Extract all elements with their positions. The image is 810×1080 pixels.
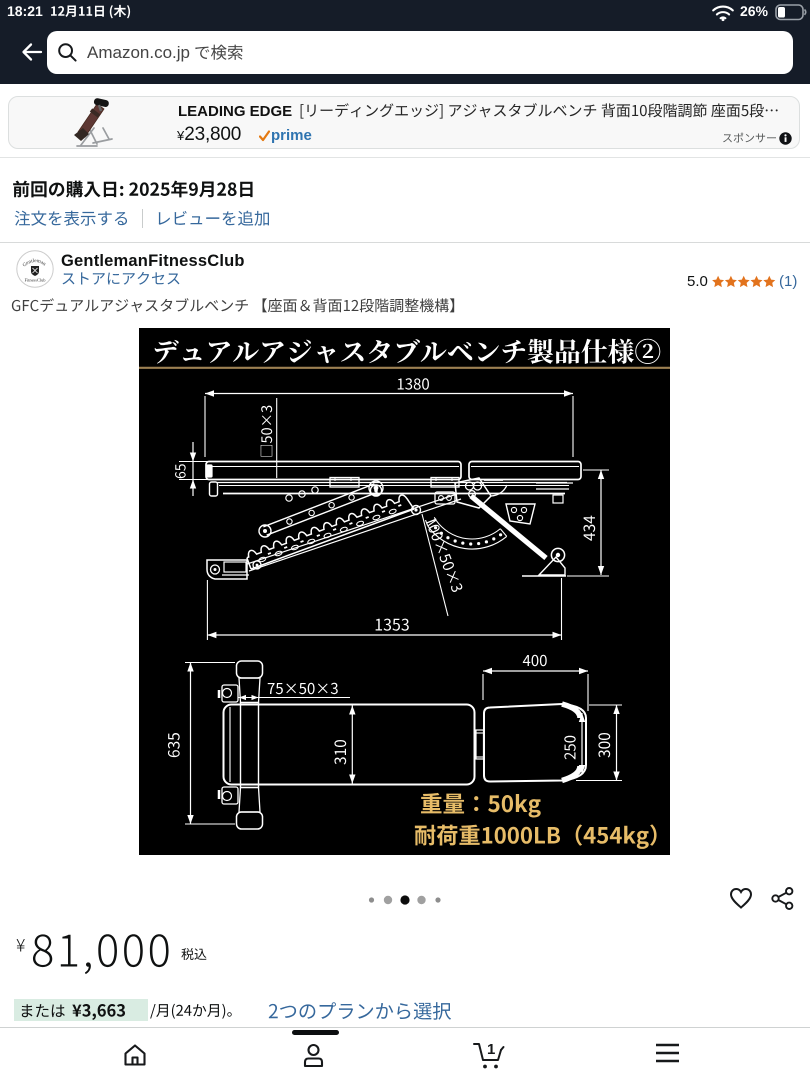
svg-text:FitnessClub: FitnessClub — [25, 278, 47, 283]
svg-text:1: 1 — [487, 1041, 495, 1058]
